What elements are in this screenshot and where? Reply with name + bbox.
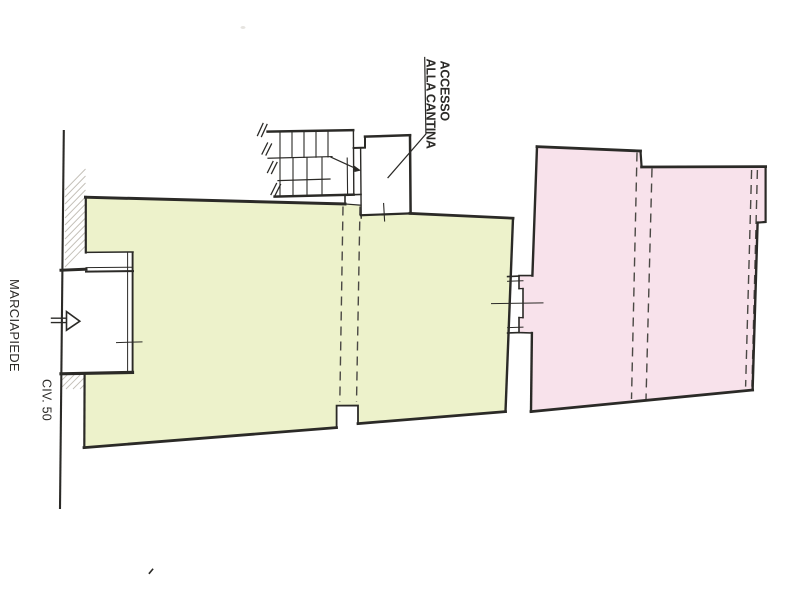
sidewalk-label: MARCIAPIEDE xyxy=(7,279,22,372)
room-right-unit xyxy=(519,147,766,412)
cellar-access-leader-line xyxy=(388,58,426,178)
floor-plan-canvas: MARCIAPIEDE CIV. 50 ACCESSO ALLA CANTINA xyxy=(0,0,800,600)
scanned-floor-plan-page: MARCIAPIEDE CIV. 50 ACCESSO ALLA CANTINA xyxy=(0,0,800,600)
wall-hatching xyxy=(62,169,86,389)
passage-threshold-tick xyxy=(492,303,544,304)
civic-number-label: CIV. 50 xyxy=(40,379,54,421)
sidewalk-edge-line xyxy=(60,131,64,508)
stair-treads xyxy=(280,131,348,196)
entrance-arrow-icon xyxy=(52,312,80,331)
entrance-threshold-tick xyxy=(117,342,143,343)
courtyard-bottom-wall xyxy=(61,372,133,373)
left-wall-top-cap xyxy=(61,269,86,270)
scan-smudge xyxy=(241,26,246,29)
staircase xyxy=(258,124,362,205)
stair-break-marks xyxy=(258,124,281,196)
stair-direction-arrow-icon xyxy=(331,157,361,172)
cellar-access-room xyxy=(354,135,411,221)
cellar-access-label-line1: ACCESSO xyxy=(438,61,452,122)
stray-pen-mark xyxy=(149,569,152,573)
cellar-access-label-line2: ALLA CANTINA xyxy=(424,59,438,149)
room-left-unit xyxy=(84,197,513,448)
